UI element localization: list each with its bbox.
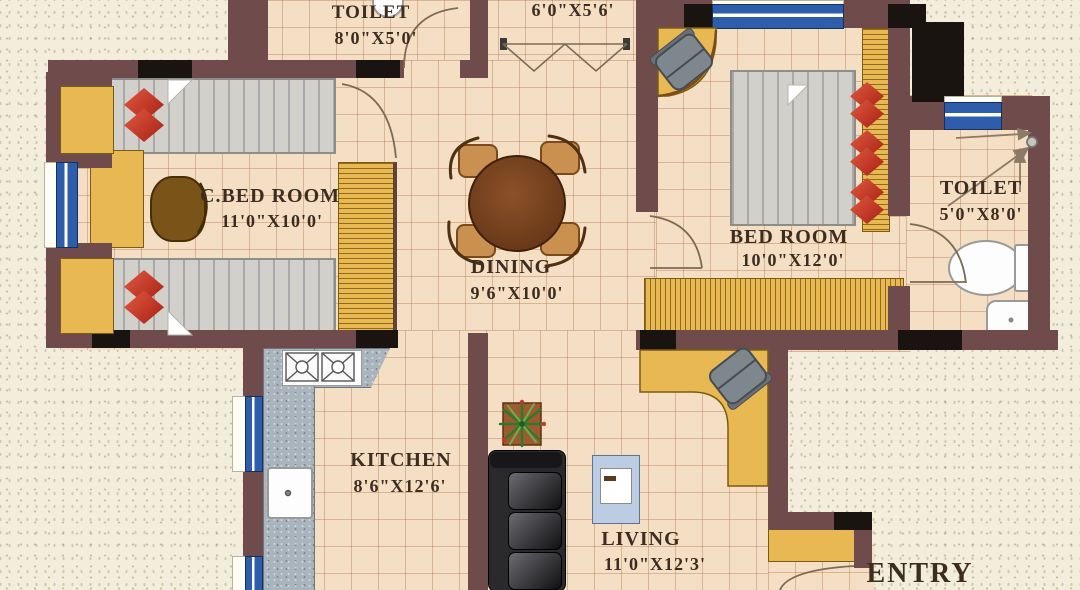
wall (636, 0, 658, 212)
window-sill (232, 556, 246, 590)
window-bedroom (712, 4, 844, 29)
wall (786, 512, 836, 530)
label-toilet-right-name: TOILET (940, 177, 1022, 200)
dining-table (468, 155, 566, 252)
label-cbedroom-name: C.BED ROOM (200, 185, 340, 208)
wall-accent (834, 512, 872, 530)
window-cbedroom (56, 162, 78, 248)
wall-accent (357, 332, 397, 348)
window-seat (60, 258, 114, 334)
label-living-name: LIVING (601, 528, 680, 551)
window-seat (60, 86, 114, 154)
wall (470, 0, 488, 78)
wall (468, 333, 488, 590)
wall (228, 0, 268, 66)
wall (768, 348, 788, 530)
wall (1028, 96, 1050, 350)
wall-accent (356, 60, 400, 78)
kitchen-sink (267, 467, 313, 519)
wall-accent (138, 60, 192, 78)
window-toilet (944, 102, 1002, 130)
label-dining-dims: 9'6"X10'0' (471, 283, 564, 304)
label-bedroom-name: BED ROOM (730, 226, 849, 249)
bed-pillow (124, 270, 164, 324)
bed-pillow (850, 178, 884, 224)
label-store-dims: 6'0"X5'6' (532, 0, 615, 21)
double-bed (730, 70, 856, 226)
wardrobe-bedroom-bottom (644, 278, 904, 336)
label-entry: ENTRY (866, 558, 973, 590)
shoe-cabinet (768, 528, 858, 562)
window-kitchen (245, 396, 263, 472)
wardrobe-cbedroom (338, 162, 397, 334)
label-living-dims: 11'0"X12'3' (604, 554, 706, 575)
stool (150, 176, 206, 242)
sofa-cushion (508, 472, 562, 510)
label-cbedroom-dims: 11'0"X10'0' (221, 211, 323, 232)
sofa-cushion (508, 552, 562, 590)
sofa-cushion (508, 512, 562, 550)
window-kitchen (245, 556, 263, 590)
wc-toilet (948, 240, 1024, 296)
floor-plan: TOILET 8'0"X5'0' 6'0"X5'6' C.BED ROOM 11… (0, 0, 1080, 590)
center-table-decor (604, 476, 616, 481)
center-table-top (600, 468, 632, 504)
label-toilet-top-name: TOILET (332, 2, 411, 24)
label-toilet-top-dims: 8'0"X5'0' (335, 28, 418, 49)
bed-pillow (850, 130, 884, 176)
wall (636, 330, 1058, 350)
wall-accent (684, 4, 712, 28)
wall-accent (912, 22, 964, 102)
label-toilet-right-dims: 5'0"X8'0' (940, 204, 1023, 225)
wall-accent (898, 330, 962, 350)
label-kitchen-name: KITCHEN (350, 449, 451, 472)
bed-pillow (124, 88, 164, 142)
gas-stove (282, 350, 362, 386)
wall (888, 286, 910, 332)
wall-accent (640, 330, 676, 350)
bed-pillow (850, 82, 884, 128)
window-sill (232, 396, 246, 472)
sofa-armrest (490, 452, 562, 468)
label-dining-name: DINING (471, 256, 551, 279)
label-bedroom-dims: 10'0"X12'0' (742, 250, 845, 271)
label-kitchen-dims: 8'6"X12'6' (354, 476, 447, 497)
